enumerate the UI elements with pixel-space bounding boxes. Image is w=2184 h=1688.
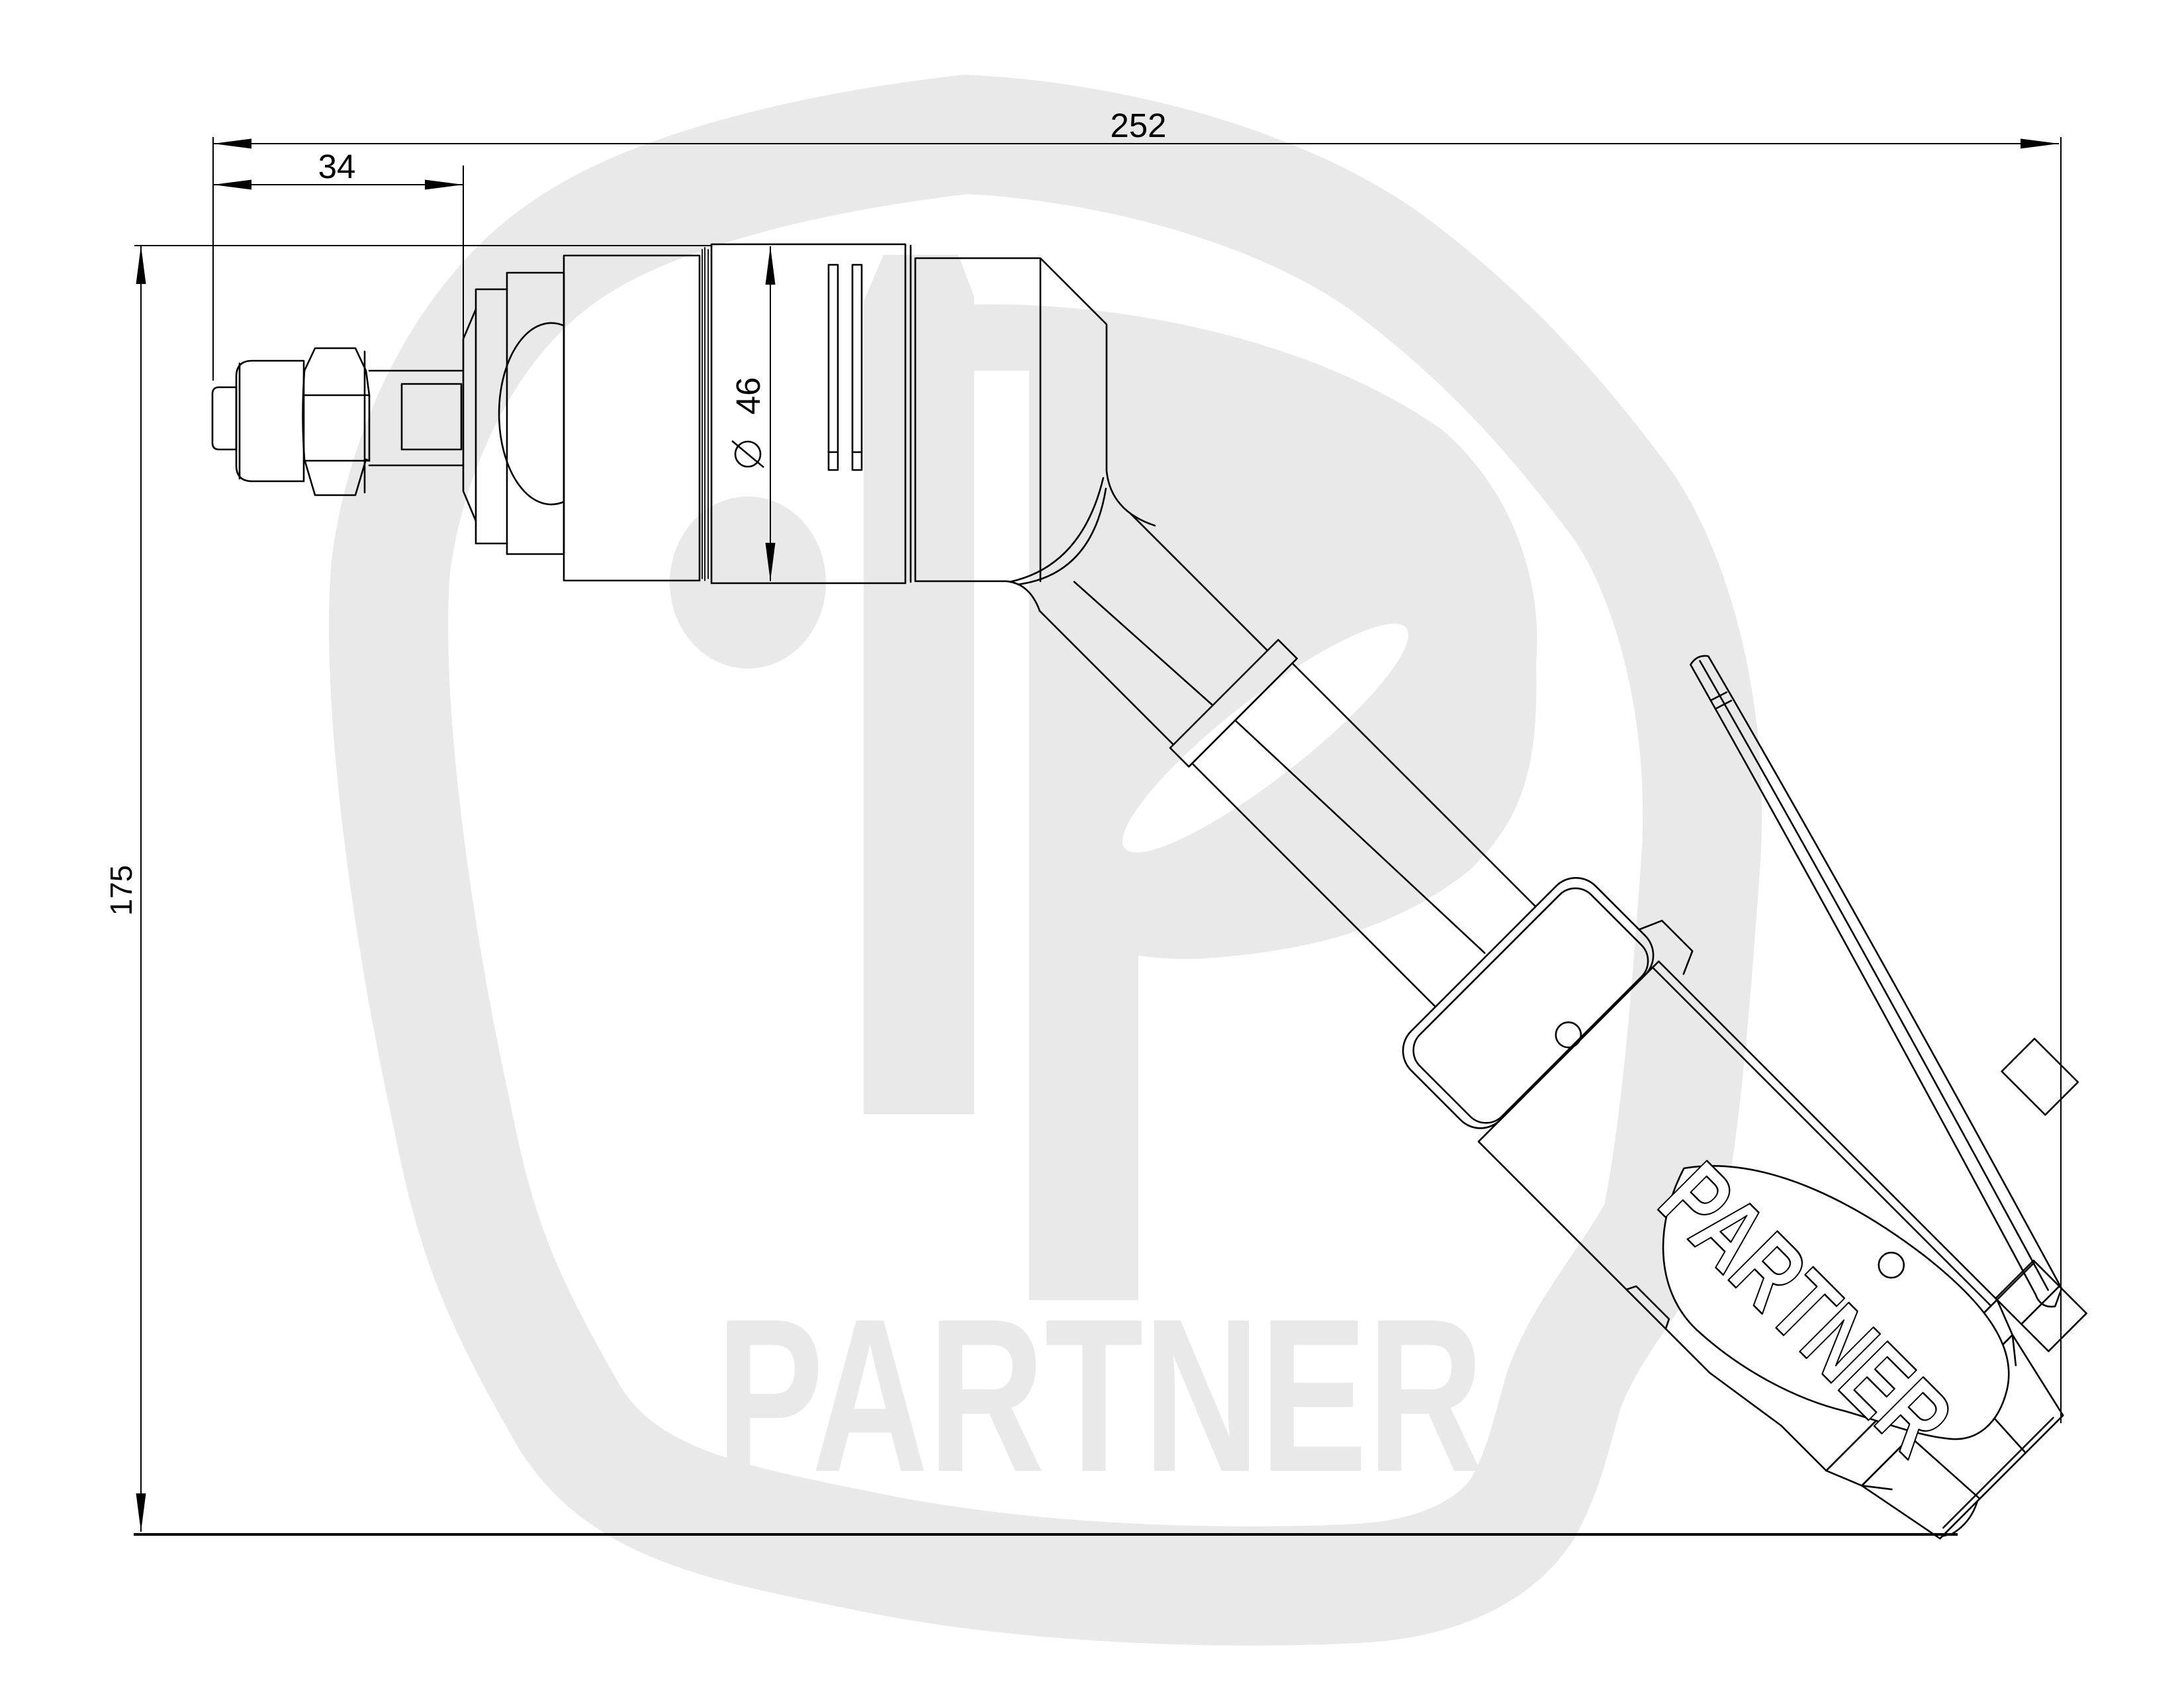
svg-text:175: 175	[104, 865, 138, 916]
svg-text:252: 252	[1110, 107, 1166, 144]
svg-text:34: 34	[318, 148, 356, 185]
svg-text:PARTNER: PARTNER	[716, 1273, 1484, 1517]
svg-text:46: 46	[729, 377, 767, 415]
